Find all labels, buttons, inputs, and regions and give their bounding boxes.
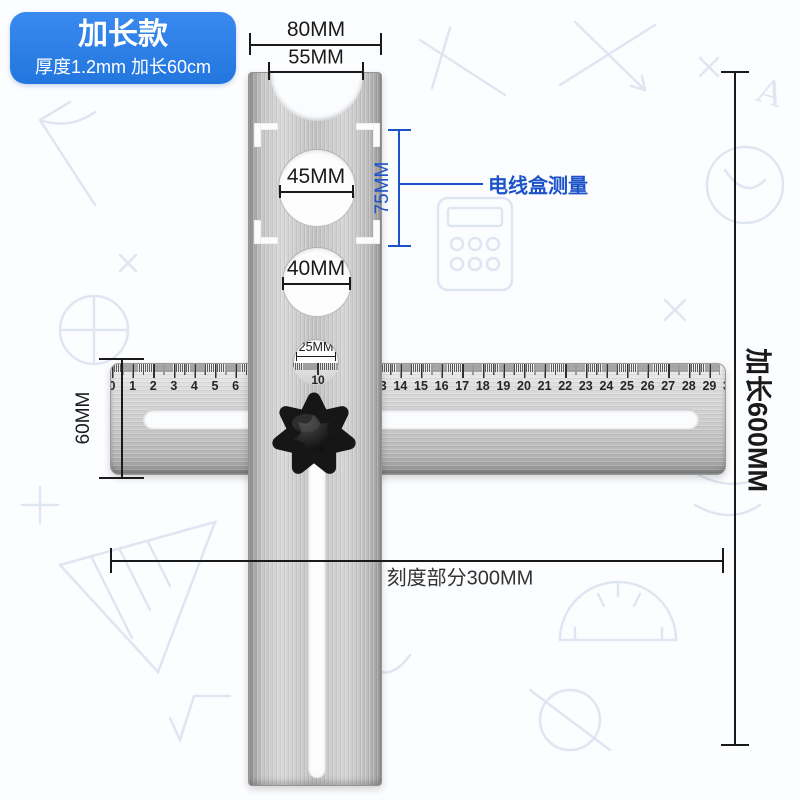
badge-subtitle: 厚度1.2mm 加长60cm bbox=[35, 53, 211, 79]
dim-cap bbox=[388, 129, 411, 131]
dim-cap bbox=[349, 277, 351, 290]
dim-cap bbox=[279, 185, 281, 198]
dim-cap bbox=[282, 277, 284, 290]
dim-cap bbox=[721, 71, 749, 73]
promo-badge: 加长款 厚度1.2mm 加长60cm bbox=[10, 12, 236, 84]
dim-label-75mm: 75MM bbox=[372, 162, 394, 215]
extended-length-label: 加长600MM bbox=[741, 348, 780, 492]
dim-cap bbox=[388, 245, 411, 247]
dim-label-55mm: 55MM bbox=[288, 47, 344, 70]
dim-line-600mm bbox=[734, 72, 736, 745]
dim-line-80mm bbox=[249, 44, 381, 46]
dim-label-45mm: 45MM bbox=[287, 165, 345, 189]
electrical-box-label: 电线盒测量 bbox=[488, 170, 588, 199]
dim-label-60mm: 60MM bbox=[73, 392, 95, 445]
dim-cap bbox=[721, 744, 749, 746]
dim-cap bbox=[110, 548, 112, 573]
annotation-layer: 80MM 55MM 45MM 40MM 75MM 电线盒测量 60MM bbox=[0, 0, 800, 800]
dim-line-60mm bbox=[121, 358, 123, 478]
dim-line-45mm bbox=[279, 191, 353, 193]
dim-cap bbox=[268, 62, 270, 80]
leader-line bbox=[399, 183, 483, 185]
dim-label-40mm: 40MM bbox=[287, 257, 345, 281]
dim-cap bbox=[99, 477, 144, 479]
dim-line-55mm bbox=[268, 71, 363, 73]
dim-cap bbox=[380, 33, 382, 55]
dim-cap bbox=[352, 185, 354, 198]
badge-title: 加长款 bbox=[78, 18, 168, 51]
dim-line-40mm bbox=[282, 283, 350, 285]
dim-line-75mm bbox=[398, 130, 400, 246]
dim-cap bbox=[99, 358, 144, 360]
dim-label-80mm: 80MM bbox=[287, 18, 345, 42]
dim-cap bbox=[249, 33, 251, 55]
product-diagram: A 01234567891011121314151617181920212223… bbox=[0, 0, 800, 800]
dim-cap bbox=[722, 548, 724, 573]
dim-cap bbox=[362, 62, 364, 80]
scale-section-label: 刻度部分300MM bbox=[387, 562, 534, 591]
